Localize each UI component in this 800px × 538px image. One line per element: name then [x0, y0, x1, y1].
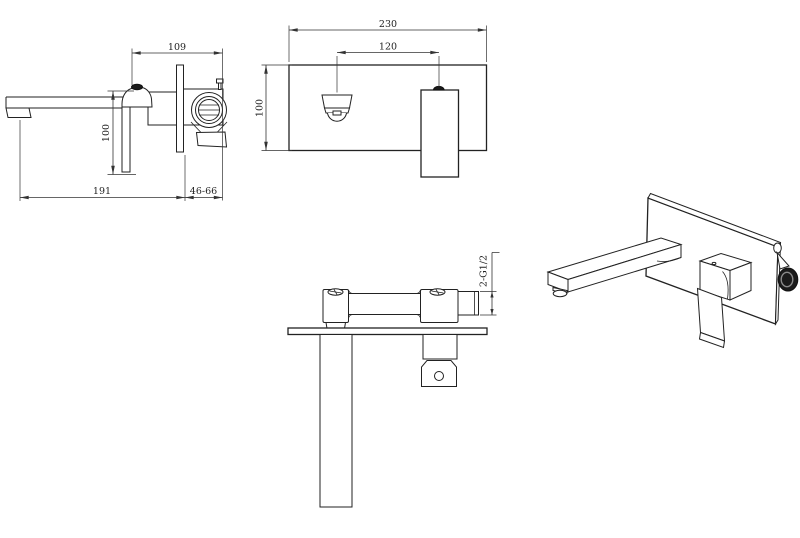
side-view: 109 100 191 46-66	[6, 42, 227, 201]
spout-aerator	[333, 111, 341, 115]
drawing-canvas: 109 100 191 46-66 230 120 100	[0, 0, 800, 538]
dim-label-plate-width: 230	[379, 19, 397, 30]
dim-label-spout-reach: 191	[93, 186, 111, 197]
thread-arrow-bottom	[490, 309, 493, 315]
wall-plate-edge	[177, 65, 184, 152]
dim-label-plate-height: 100	[255, 99, 266, 117]
mixer-body	[148, 92, 177, 125]
plate-3d-ring	[774, 243, 782, 253]
spout-tube-top	[320, 335, 352, 508]
dim-label-overall-height: 100	[101, 124, 112, 142]
bleed-screw-stem	[219, 83, 222, 90]
dim-label-wall-adjustment: 46-66	[190, 186, 217, 197]
dim-label-body-depth: 109	[168, 42, 186, 53]
spout-tip	[6, 108, 31, 118]
handle-front	[421, 90, 459, 177]
front-view: 230 120 100	[255, 19, 487, 177]
handle-cube-dot-3d	[712, 262, 716, 264]
dim-label-spout-handle-spacing: 120	[379, 42, 397, 53]
perspective-view	[548, 194, 798, 348]
inlet-fitting	[458, 292, 479, 316]
wall-plate-top	[288, 328, 487, 335]
housing-base-block	[197, 132, 227, 147]
technical-drawing-page: 109 100 191 46-66 230 120 100	[0, 0, 800, 538]
handle-grip-hole	[435, 372, 444, 381]
handle-neck-top	[423, 335, 457, 360]
dim-label-inlet-thread: 2-G1/2	[479, 255, 490, 287]
cylinder-fillets	[349, 290, 421, 318]
handle-neck	[122, 88, 152, 108]
top-view: 2-G1/2	[288, 253, 500, 508]
thread-arrow-top	[490, 292, 493, 298]
handle-lever	[122, 107, 130, 172]
spout-front-body	[322, 95, 352, 108]
bleed-screw-cap	[217, 79, 224, 83]
handle-cap	[132, 84, 143, 90]
body-cylinder	[349, 294, 421, 315]
aerator-3d	[553, 290, 567, 296]
